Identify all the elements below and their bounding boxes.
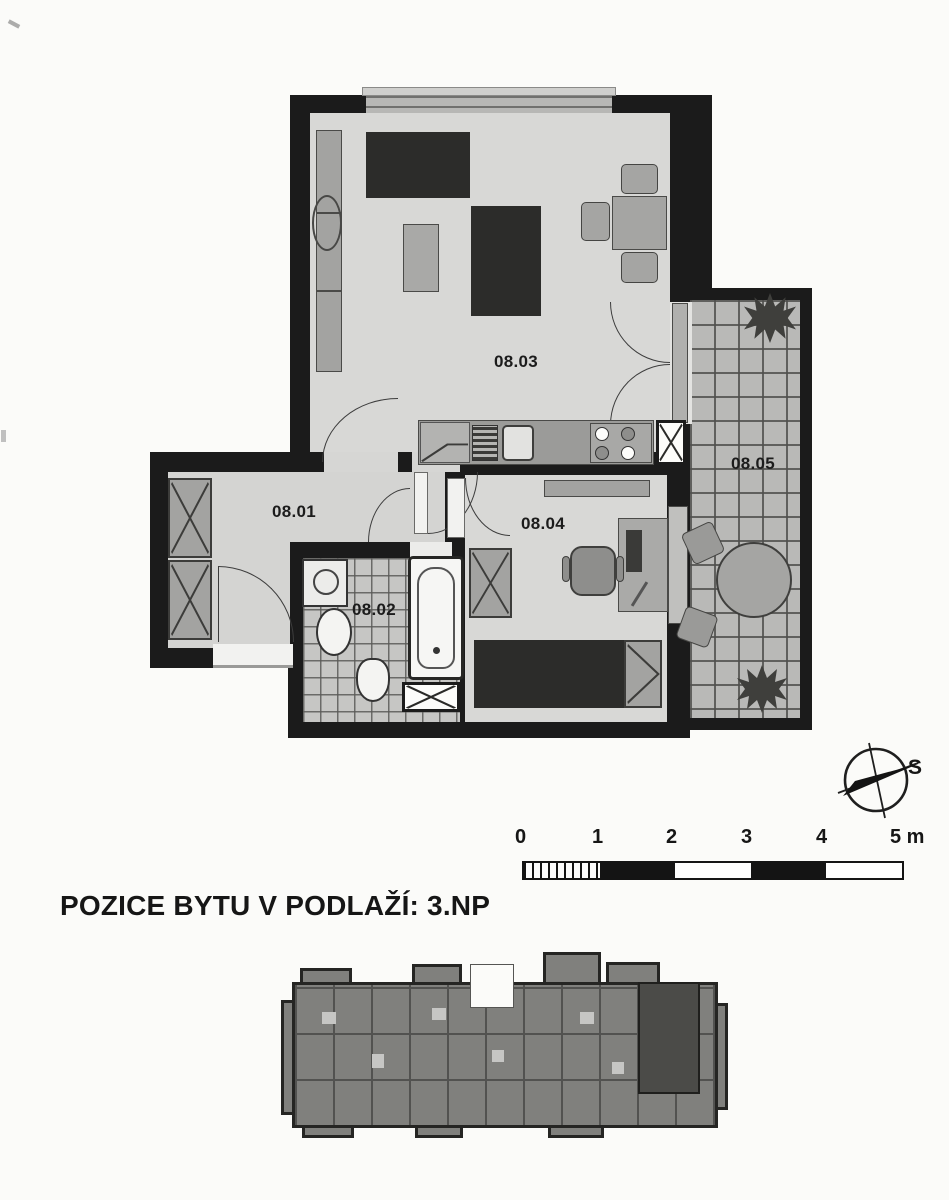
terrace-door-panel bbox=[672, 303, 688, 423]
floor-lamp bbox=[312, 195, 342, 251]
washing-machine-drum bbox=[313, 569, 339, 595]
building-room-spot bbox=[322, 1012, 336, 1024]
compass bbox=[832, 734, 949, 826]
cooktop-burner bbox=[595, 427, 609, 441]
building-room-spot bbox=[432, 1008, 446, 1020]
scale-segment bbox=[751, 863, 827, 878]
kitchen-corner-cabinet bbox=[420, 422, 470, 463]
ventilation-shaft-bathroom bbox=[402, 682, 460, 712]
room-label-08-04: 08.04 bbox=[521, 514, 565, 534]
bedroom-shelf bbox=[544, 480, 650, 497]
cabinet-divider bbox=[317, 290, 341, 292]
bedroom-balcony-window bbox=[668, 506, 688, 624]
cooktop-burner bbox=[621, 446, 635, 460]
toilet bbox=[356, 658, 390, 702]
scale-bar-ruler bbox=[522, 861, 904, 880]
terrace-table bbox=[716, 542, 792, 618]
dining-chair-top bbox=[621, 164, 658, 194]
dining-table bbox=[612, 196, 667, 250]
dishwasher bbox=[472, 425, 498, 461]
scan-artifact bbox=[1, 430, 6, 442]
apartment-floor-plan: 08.01 08.02 08.03 08.04 08.05 bbox=[0, 0, 949, 760]
bedroom-door-leaf bbox=[447, 478, 465, 538]
bed bbox=[474, 640, 624, 708]
washing-machine bbox=[302, 559, 348, 607]
building-room-spot bbox=[372, 1054, 384, 1068]
ventilation-shaft-kitchen bbox=[656, 420, 686, 465]
plant-icon bbox=[734, 664, 790, 714]
entrance-opening bbox=[213, 644, 293, 668]
window-sill bbox=[362, 87, 616, 96]
building-courtyard-notch bbox=[470, 964, 514, 1008]
page-title: POZICE BYTU V PODLAŽÍ: 3.NP bbox=[60, 890, 490, 922]
highlighted-unit bbox=[638, 982, 700, 1094]
scale-tick-label: 1 bbox=[592, 826, 603, 849]
scale-segment bbox=[826, 863, 902, 878]
washbasin bbox=[316, 608, 352, 656]
scale-tick-label: 4 bbox=[816, 826, 827, 849]
room-label-08-05: 08.05 bbox=[731, 454, 775, 474]
cooktop-burner bbox=[621, 427, 635, 441]
office-chair bbox=[570, 546, 616, 596]
scale-tick-label: 0 bbox=[515, 826, 526, 849]
compass-label: S bbox=[908, 756, 922, 780]
scale-tick-label: 3 bbox=[741, 826, 752, 849]
hall-wardrobe-lower bbox=[168, 560, 212, 640]
scale-segment bbox=[675, 863, 751, 878]
scale-tick-label: 2 bbox=[666, 826, 677, 849]
living-wall-cabinet bbox=[316, 130, 342, 372]
plant-icon bbox=[744, 292, 796, 344]
kitchen-sink bbox=[502, 425, 534, 461]
room-label-08-02: 08.02 bbox=[352, 600, 396, 620]
scale-tick-label: 5 m bbox=[890, 826, 924, 849]
dining-chair-left bbox=[581, 202, 610, 241]
office-chair-arm-right bbox=[616, 556, 624, 582]
dining-chair-bottom bbox=[621, 252, 658, 283]
scanned-floor-plan-page: { "section_title": "POZICE BYTU V PODLAŽ… bbox=[0, 0, 949, 1200]
tv-cabinet bbox=[471, 206, 541, 316]
desk-monitor bbox=[626, 530, 642, 572]
bathtub-drain bbox=[433, 647, 440, 654]
sofa bbox=[366, 132, 470, 198]
bathtub bbox=[408, 556, 464, 680]
scale-segment bbox=[524, 863, 600, 878]
building-overview bbox=[280, 950, 740, 1150]
cooktop-burner bbox=[595, 446, 609, 460]
building-room-spot bbox=[612, 1062, 624, 1074]
office-chair-arm-left bbox=[562, 556, 570, 582]
building-room-spot bbox=[492, 1050, 504, 1062]
hall-wardrobe-upper bbox=[168, 478, 212, 558]
terrace-floor bbox=[690, 300, 800, 718]
coffee-table bbox=[403, 224, 439, 292]
scale-segment bbox=[600, 863, 676, 878]
room-label-08-03: 08.03 bbox=[494, 352, 538, 372]
room-label-08-01: 08.01 bbox=[272, 502, 316, 522]
bed-headboard bbox=[624, 640, 662, 708]
corridor-door-leaf bbox=[414, 472, 428, 534]
building-room-spot bbox=[580, 1012, 594, 1024]
bedroom-wardrobe bbox=[469, 548, 512, 618]
